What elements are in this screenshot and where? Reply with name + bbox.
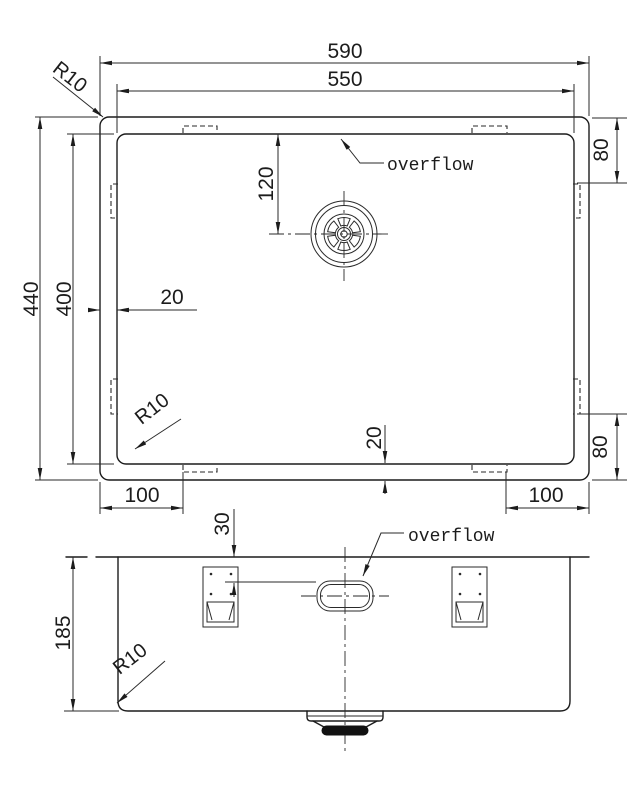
dim-rim-bottom-label: 20 <box>363 426 386 449</box>
bracket-right <box>452 567 487 627</box>
dim-overflow-offset: 30 <box>211 509 234 597</box>
clip-top-right <box>472 126 507 133</box>
dim-clip-bottom-left-label: 100 <box>124 484 159 507</box>
radius-bottom-left-label: R10 <box>131 389 173 429</box>
dim-rim-bottom: 20 <box>363 425 386 494</box>
overflow-slot <box>225 581 389 611</box>
overflow-callout-top: overflow <box>341 139 474 176</box>
dim-clip-top-right: 80 <box>577 118 627 183</box>
dim-clip-top-right-label: 80 <box>590 138 613 161</box>
top-view: 590 550 440 400 120 <box>20 40 627 514</box>
radius-top-left-label: R10 <box>48 57 90 97</box>
dim-rim-left: 20 <box>88 286 197 310</box>
clip-top-left <box>183 126 217 133</box>
radius-callout-bottom-left: R10 <box>131 389 181 449</box>
dim-clip-bottom-right-h: 100 <box>506 472 589 514</box>
bowl-profile <box>118 557 570 711</box>
dim-outer-width-label: 590 <box>327 40 362 63</box>
bracket-right-tab <box>456 602 483 622</box>
sink-technical-drawing: 590 550 440 400 120 <box>0 0 636 800</box>
dim-clip-bottom-left-h: 100 <box>100 472 183 514</box>
clip-bottom-left <box>183 465 217 472</box>
clip-bottom-right <box>472 465 507 472</box>
dim-drain-offset-label: 120 <box>255 166 278 201</box>
overflow-label-front: overflow <box>408 527 495 547</box>
dim-front-height-label: 185 <box>52 615 75 650</box>
overflow-callout-front: overflow <box>363 527 495 576</box>
dim-drain-offset: 120 <box>255 134 278 234</box>
dim-rim-left-label: 20 <box>160 286 183 309</box>
front-view: 185 30 overflow R10 <box>52 509 589 752</box>
bracket-left-tab <box>207 602 234 622</box>
dim-inner-width: 550 <box>117 68 574 133</box>
dim-clip-bottom-right: 80 <box>577 414 627 480</box>
bracket-left <box>203 567 238 627</box>
dim-inner-height-label: 400 <box>53 281 76 316</box>
outlet-seal <box>322 726 368 735</box>
dim-clip-bottom-right-label: 80 <box>589 435 612 458</box>
dim-front-height: 185 <box>52 557 75 711</box>
dim-clip-bottom-right-h-label: 100 <box>528 484 563 507</box>
drain-strainer <box>269 191 388 281</box>
drawing-canvas: 590 550 440 400 120 <box>0 0 636 800</box>
radius-callout-top-left: R10 <box>48 57 103 117</box>
dim-inner-height: 400 <box>53 134 114 464</box>
sink-bowl-edge <box>117 134 574 464</box>
dim-outer-height-label: 440 <box>20 281 43 316</box>
dim-overflow-offset-label: 30 <box>211 512 234 535</box>
overflow-label-top: overflow <box>387 156 474 176</box>
dim-inner-width-label: 550 <box>327 68 362 91</box>
radius-front-label: R10 <box>109 639 151 679</box>
